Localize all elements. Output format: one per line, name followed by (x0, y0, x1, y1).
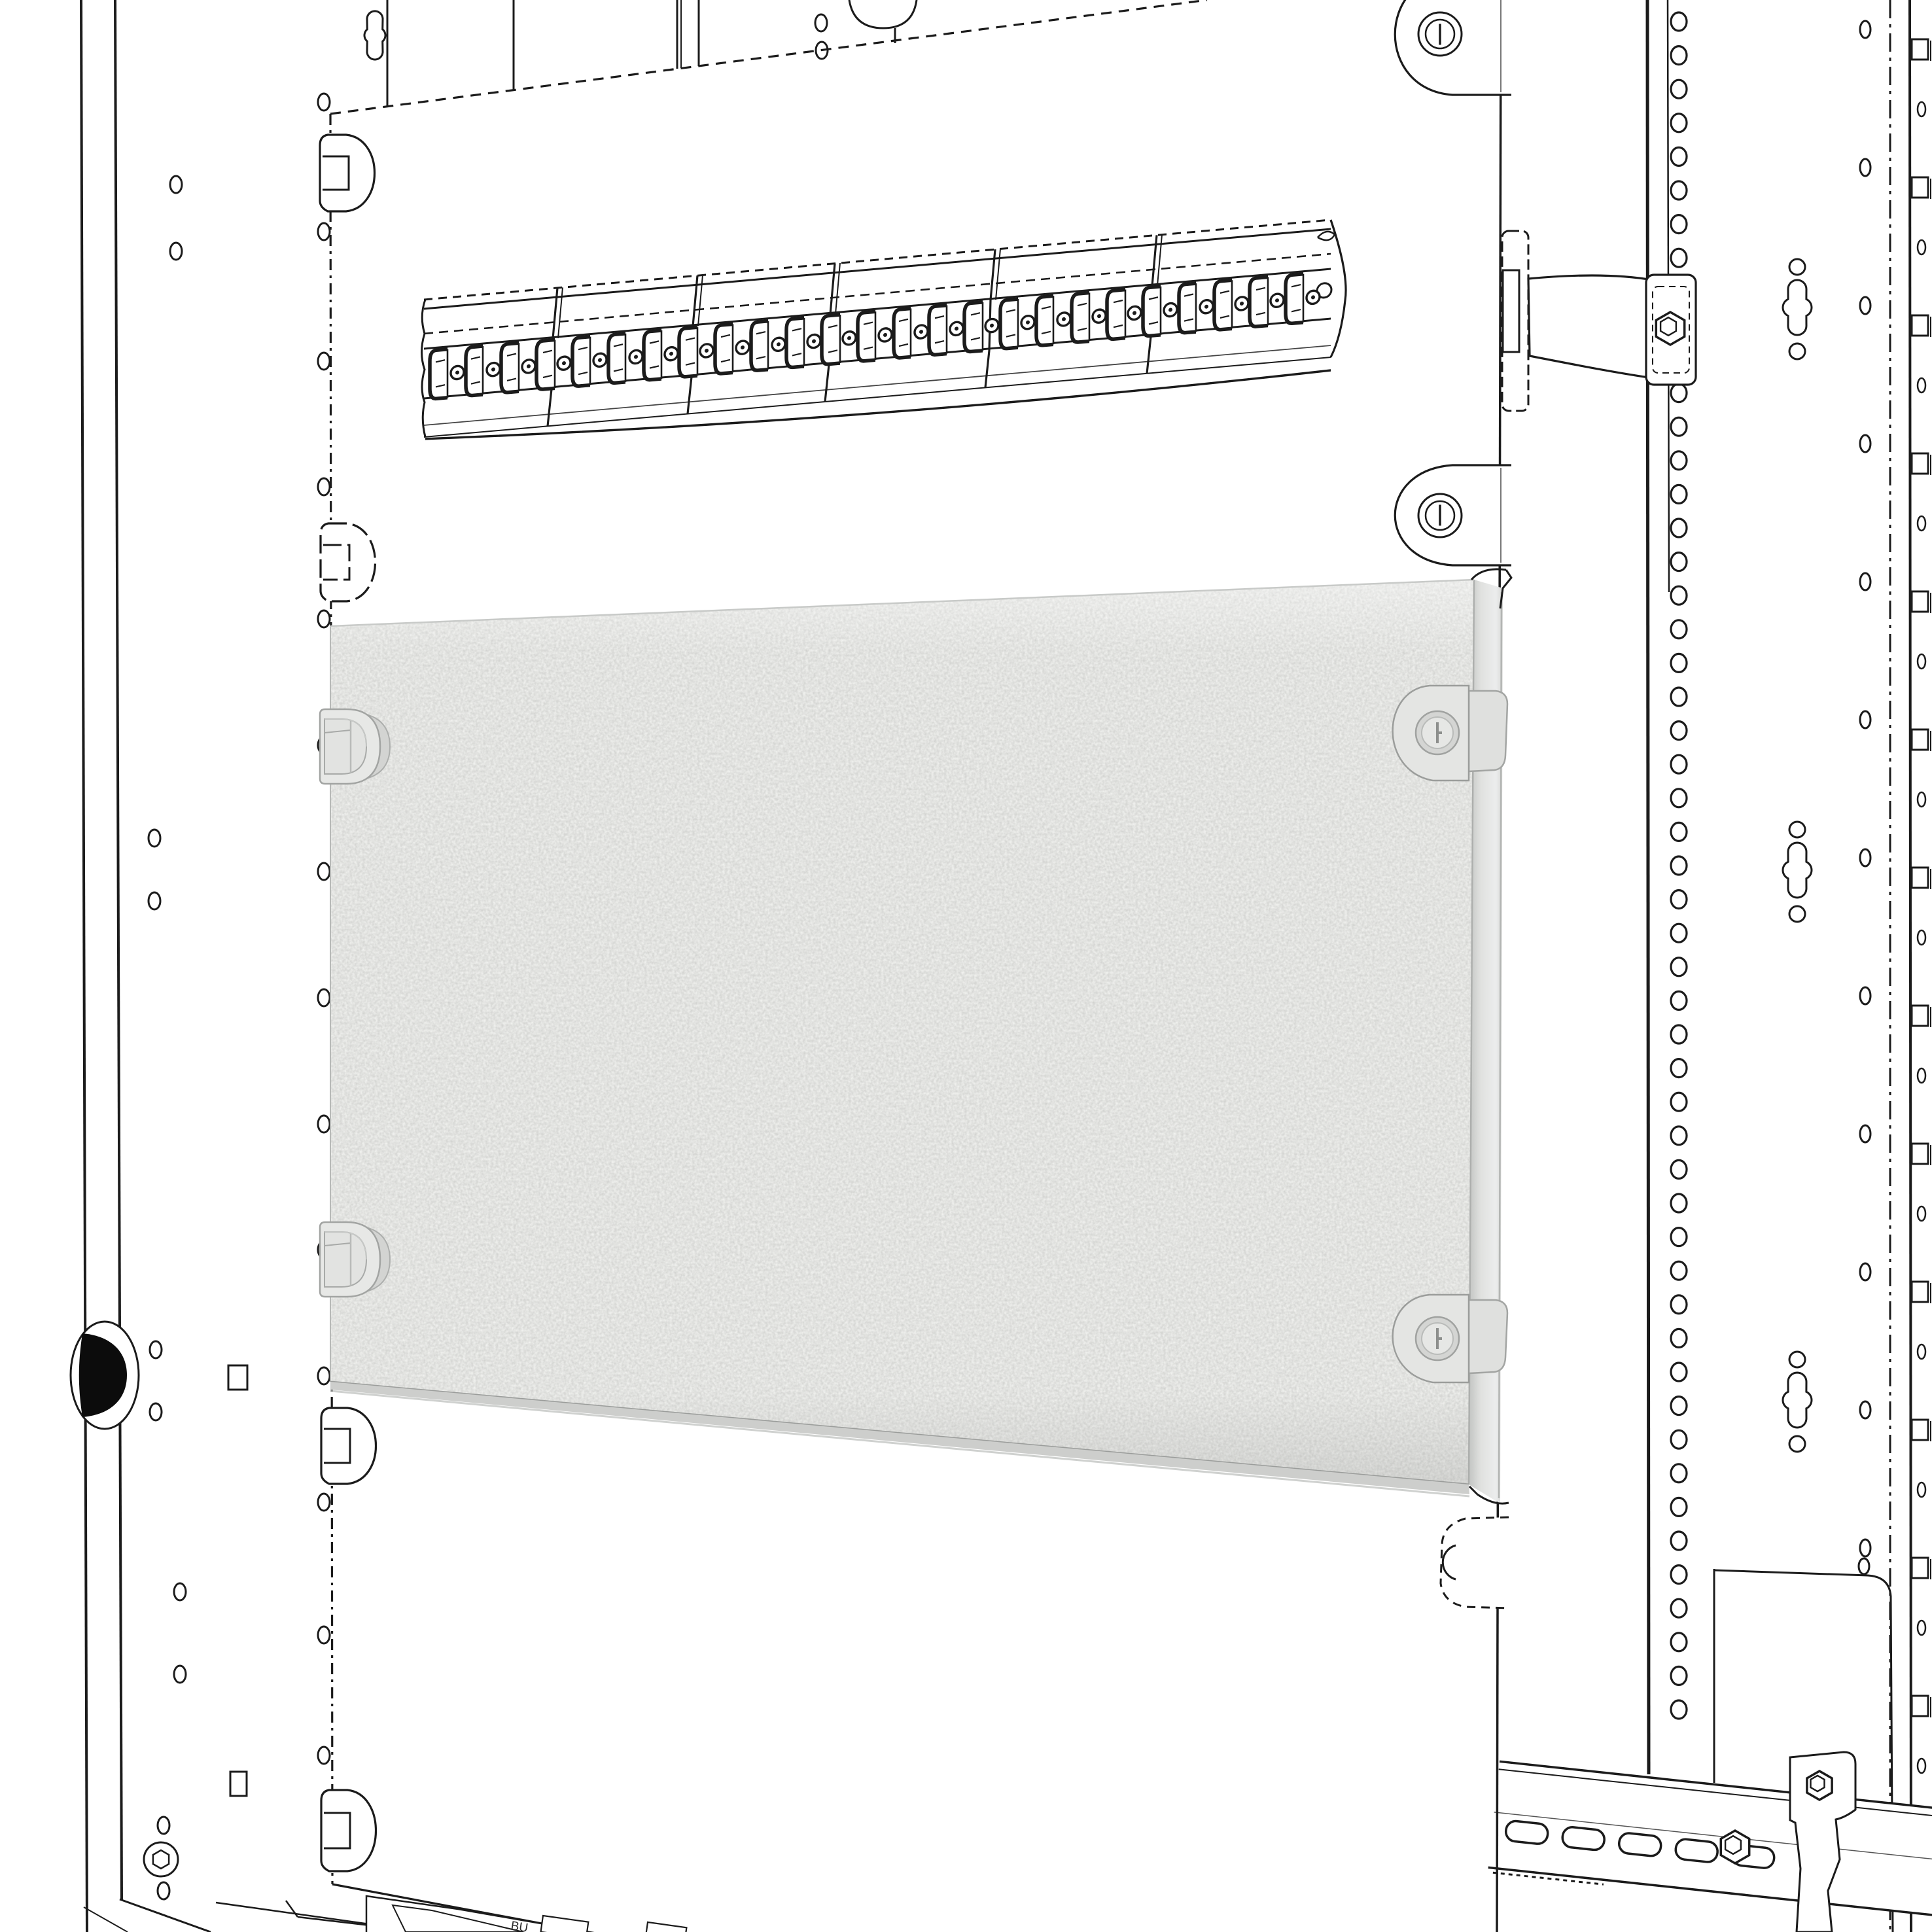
svg-text:BU: BU (510, 1919, 529, 1932)
